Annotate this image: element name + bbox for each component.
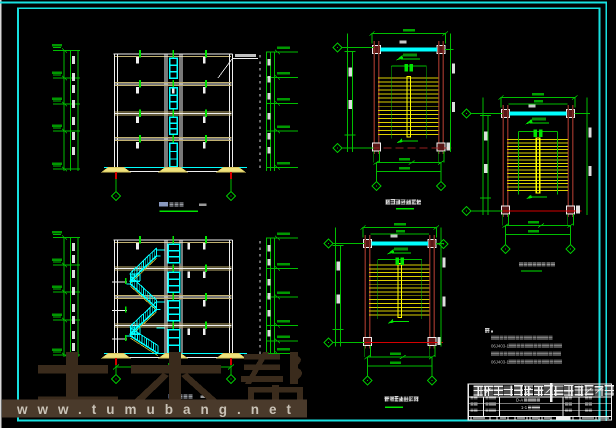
svg-text:1-1: 1-1	[521, 405, 528, 410]
svg-text:06J403-1: 06J403-1	[491, 359, 510, 364]
svg-text:www.tumubang.net: www.tumubang.net	[16, 402, 301, 417]
svg-text:D-A: D-A	[516, 398, 523, 403]
svg-text:06J403-1: 06J403-1	[491, 343, 510, 348]
